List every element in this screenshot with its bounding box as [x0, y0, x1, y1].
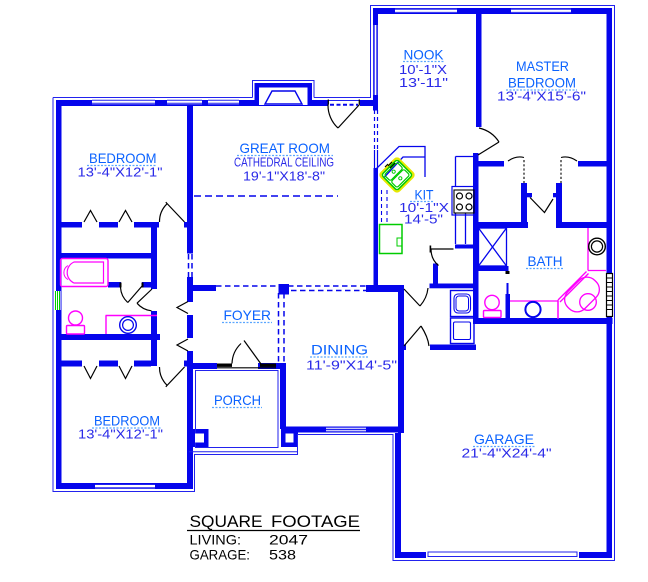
svg-text:MASTER: MASTER [516, 58, 569, 74]
svg-text:13'-4"X12'-1": 13'-4"X12'-1" [78, 427, 163, 442]
svg-text:PORCH: PORCH [214, 392, 261, 408]
svg-text:19'-1"X18'-8": 19'-1"X18'-8" [243, 169, 325, 184]
svg-text:13'-11": 13'-11" [399, 75, 448, 90]
svg-text:BEDROOM: BEDROOM [508, 75, 576, 91]
svg-text:LIVING:: LIVING: [190, 532, 242, 548]
svg-text:13'-4"X12'-1": 13'-4"X12'-1" [78, 165, 163, 180]
svg-text:14'-5": 14'-5" [404, 212, 443, 227]
svg-text:11'-9"X14'-5": 11'-9"X14'-5" [306, 358, 397, 373]
svg-text:GARAGE:: GARAGE: [190, 547, 251, 563]
svg-text:DINING: DINING [311, 342, 368, 358]
svg-text:SQUARE: SQUARE [190, 512, 263, 531]
svg-text:CATHEDRAL CEILING: CATHEDRAL CEILING [234, 155, 334, 170]
svg-text:FOOTAGE: FOOTAGE [271, 512, 360, 531]
svg-text:538: 538 [269, 547, 296, 563]
svg-text:NOOK: NOOK [404, 47, 445, 63]
svg-text:BATH: BATH [528, 253, 563, 269]
svg-text:2047: 2047 [269, 532, 308, 548]
svg-text:FOYER: FOYER [224, 307, 272, 323]
svg-text:13'-4"X15'-6": 13'-4"X15'-6" [497, 90, 586, 104]
svg-text:21'-4"X24'-4": 21'-4"X24'-4" [462, 446, 552, 461]
